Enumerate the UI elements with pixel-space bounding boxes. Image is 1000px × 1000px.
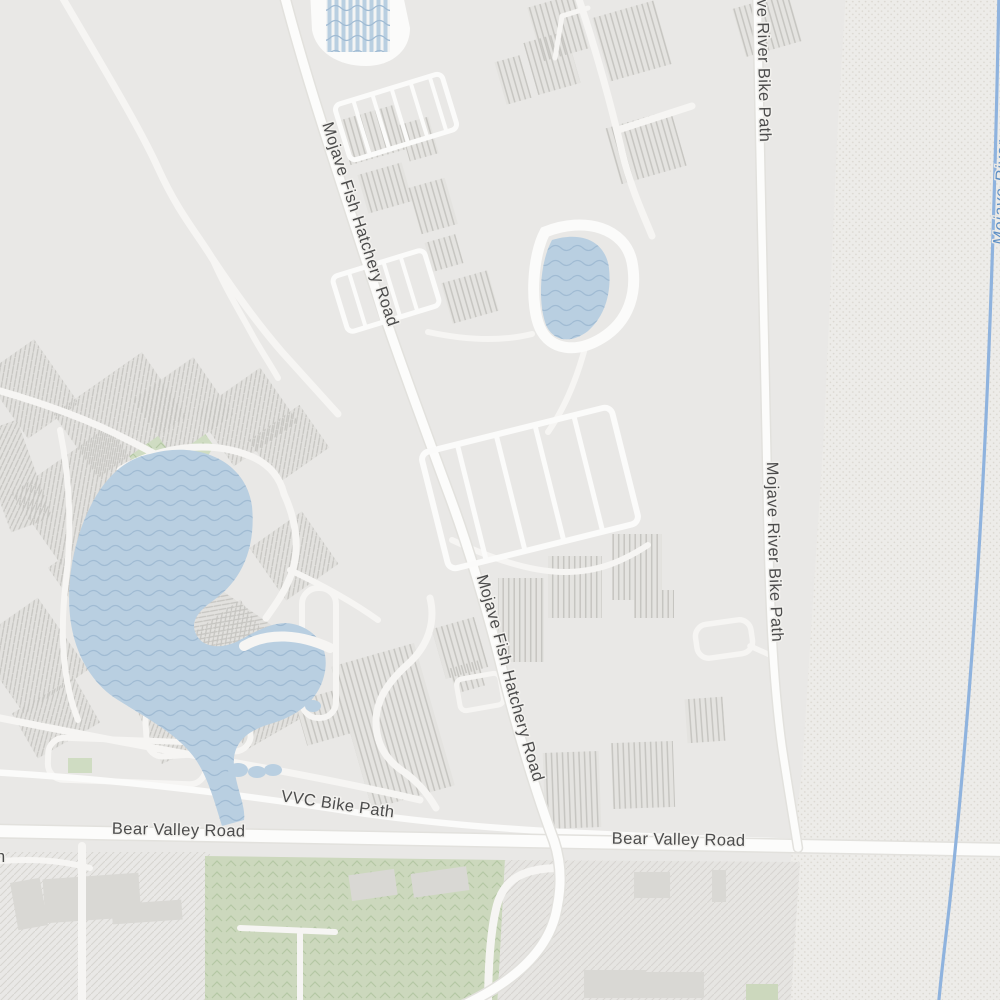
map-canvas[interactable]: Mojave Fish Hatchery Road Mojave Fish Ha… [0,0,1000,1000]
road-label-bear-valley-2: Bear Valley Road [612,830,746,850]
road-label-bear-valley-1: Bear Valley Road [112,820,246,841]
map-svg: Mojave Fish Hatchery Road Mojave Fish Ha… [0,0,1000,1000]
clipped-road-label-left-edge: n [0,848,6,866]
